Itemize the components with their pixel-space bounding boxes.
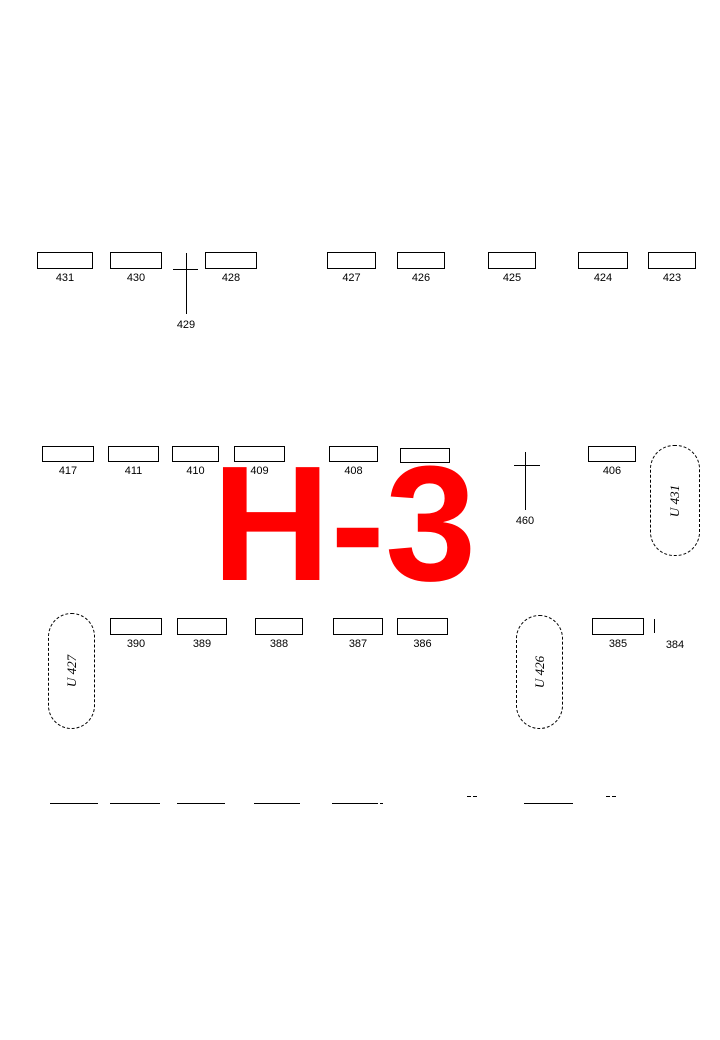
grave-plot-rect-431 xyxy=(37,252,93,269)
grave-plot-rect-408 xyxy=(329,446,378,462)
grave-plot-rect-430 xyxy=(110,252,162,269)
grave-plot-label: 410 xyxy=(166,465,226,477)
grave-plot-rect-424 xyxy=(578,252,628,269)
grave-plot-label: 426 xyxy=(391,272,451,284)
grave-plot-label: 431 xyxy=(35,272,95,284)
grave-plot-rect-386 xyxy=(397,618,448,635)
partial-plot-line xyxy=(332,803,378,804)
grave-plot-rect-409 xyxy=(234,446,285,462)
urn-plot-capsule-u-426: U 426 xyxy=(516,615,563,729)
partial-plot-line xyxy=(50,803,98,804)
grave-plot-label: 417 xyxy=(38,465,98,477)
grave-plot-label: 411 xyxy=(104,465,164,477)
grave-plot-label: 386 xyxy=(393,638,453,650)
urn-plot-label: U 426 xyxy=(532,656,548,688)
partial-plot-line xyxy=(473,796,477,797)
grave-plot-rect-388 xyxy=(255,618,303,635)
partial-plot-line xyxy=(467,796,471,797)
grave-plot-rect-423 xyxy=(648,252,696,269)
partial-plot-line xyxy=(254,803,300,804)
partial-plot-line xyxy=(606,796,610,797)
grave-plot-rect xyxy=(400,448,450,463)
grave-plot-label: 409 xyxy=(230,465,290,477)
cross-plot-label: 460 xyxy=(495,515,555,527)
grave-plot-label: 408 xyxy=(324,465,384,477)
grave-plot-rect-427 xyxy=(327,252,376,269)
grave-plot-rect-406 xyxy=(588,446,636,462)
grave-plot-label: 427 xyxy=(322,272,382,284)
grave-plot-label: 388 xyxy=(249,638,309,650)
cross-icon-horizontal-line xyxy=(514,465,540,466)
edge-tick-label: 384 xyxy=(645,639,705,651)
partial-plot-line xyxy=(380,803,383,804)
partial-plot-line xyxy=(612,796,616,797)
grave-plot-rect-411 xyxy=(108,446,159,462)
grave-plot-rect-389 xyxy=(177,618,227,635)
grave-plot-label: 390 xyxy=(106,638,166,650)
grave-plot-rect-410 xyxy=(172,446,219,462)
grave-plot-label: 430 xyxy=(106,272,166,284)
grave-plot-label: 387 xyxy=(328,638,388,650)
grave-plot-label: 428 xyxy=(201,272,261,284)
grave-plot-label: 423 xyxy=(642,272,702,284)
grave-plot-rect-390 xyxy=(110,618,162,635)
plot-map-canvas: H-3 431430428427426425424423417411410409… xyxy=(0,0,720,1040)
grave-plot-label: 389 xyxy=(172,638,232,650)
urn-plot-capsule-u-427: U 427 xyxy=(48,613,95,729)
partial-plot-line xyxy=(524,803,573,804)
grave-plot-rect-387 xyxy=(333,618,383,635)
grave-plot-rect-385 xyxy=(592,618,644,635)
partial-plot-line xyxy=(110,803,160,804)
grave-plot-rect-426 xyxy=(397,252,445,269)
grave-plot-label: 385 xyxy=(588,638,648,650)
grave-plot-rect-428 xyxy=(205,252,257,269)
grave-plot-rect-425 xyxy=(488,252,536,269)
urn-plot-capsule-u-431: U 431 xyxy=(650,445,700,556)
grave-plot-label: 406 xyxy=(582,465,642,477)
cross-icon-vertical-line xyxy=(525,452,526,510)
grave-plot-rect-417 xyxy=(42,446,94,462)
grave-plot-label: 424 xyxy=(573,272,633,284)
cross-icon-vertical-line xyxy=(186,253,187,314)
urn-plot-label: U 427 xyxy=(64,655,80,687)
cross-icon-horizontal-line xyxy=(173,269,198,270)
cross-plot-label: 429 xyxy=(156,319,216,331)
partial-plot-line xyxy=(177,803,225,804)
grave-plot-label: 425 xyxy=(482,272,542,284)
plot-edge-tick xyxy=(654,619,655,633)
urn-plot-label: U 431 xyxy=(667,484,683,516)
